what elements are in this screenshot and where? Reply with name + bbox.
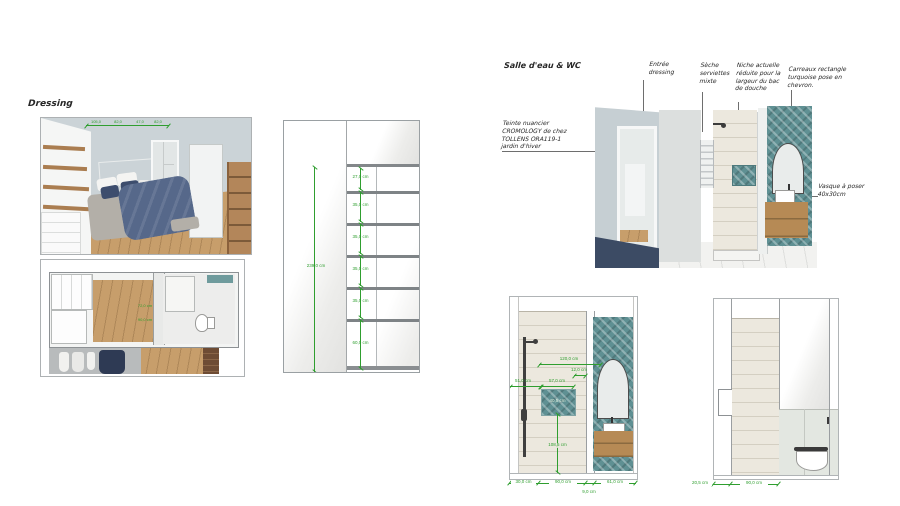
- bathroom-3d-view: [595, 104, 817, 268]
- floor-line: [510, 473, 637, 474]
- bathroom-title: Salle d'eau & WC: [504, 61, 582, 71]
- dimension-label: 12,0 cm: [566, 368, 592, 373]
- wc-elevation: [713, 298, 839, 480]
- hanging-shirt: [87, 352, 95, 370]
- dimension-label: 40,5 cm: [541, 399, 574, 404]
- hanging-shirt: [72, 352, 84, 372]
- plan-cabinet-block: [51, 310, 87, 344]
- dimension-label: 82,0: [107, 120, 129, 124]
- plan-shower: [165, 276, 195, 312]
- dimension-label: 82,0: [147, 120, 169, 124]
- left-margin-line: [518, 297, 519, 473]
- bedroom-3d-view: 105,0 82,0 47,0 82,0: [40, 117, 252, 255]
- open-closet-shelf: [164, 164, 174, 165]
- dressing-title: Dressing: [28, 99, 73, 111]
- design-sheet: Dressing 105,0 82,0 47,0 82,0: [0, 0, 900, 506]
- shower-column-head: [533, 339, 538, 344]
- toilet-bowl: [796, 451, 828, 471]
- hanging-shirt: [59, 352, 69, 372]
- dimension-line: [86, 125, 169, 126]
- dimension-label: 51,0 cm: [510, 379, 536, 384]
- dimension-label: 35,0 cm: [347, 299, 374, 304]
- dimension-line: [541, 386, 574, 387]
- wc-glass-panel: [779, 299, 830, 409]
- annotation-tiles: Carreaux rectangle turquoise pose en che…: [787, 66, 853, 89]
- ladder-shelf: [227, 162, 252, 254]
- shower-tray: [713, 250, 760, 261]
- dimension-line: [539, 364, 601, 365]
- dimension-label: 57,0 cm: [544, 379, 570, 384]
- dimension-label: 72,0 cm: [131, 304, 159, 308]
- wardrobe-top-cabinet: [347, 121, 419, 167]
- plan-wood-floor: [93, 280, 153, 342]
- dimension-label: 239,0 cm: [296, 264, 336, 269]
- wc-tile-column: [732, 318, 779, 476]
- shelf-slab: [347, 191, 419, 194]
- dimension-label: 60,0 cm: [347, 341, 374, 346]
- wardrobe-door-panel: [284, 121, 347, 372]
- shelf-slab: [347, 319, 419, 322]
- annotation-niche: Niche actuelle réduite pour la largeur d…: [735, 62, 792, 93]
- floor-line: [714, 475, 838, 476]
- section-stairs: [203, 348, 219, 374]
- dimension-line-total-height: [314, 167, 315, 372]
- dimension-label: 35,0 cm: [347, 235, 374, 240]
- plan-vanity-turquoise: [207, 275, 233, 283]
- shelf-slab: [347, 287, 419, 290]
- dimension-label: 27,0 cm: [347, 175, 374, 180]
- wardrobe-right-faces: [376, 167, 420, 367]
- dimension-label: 35,0 cm: [347, 203, 374, 208]
- dimension-label: 90,0 cm: [549, 480, 577, 485]
- arched-mirror: [597, 359, 629, 419]
- dimension-row: 30,0 cm 90,0 cm 61,0 cm 9,0 cm: [509, 479, 636, 499]
- dimension-label: 20,5 cm: [688, 481, 712, 486]
- doorway-floor: [620, 230, 648, 242]
- dimension-tick: [633, 480, 638, 485]
- dimension-label: 9,0 cm: [575, 490, 603, 495]
- dimension-label: 108,5 cm: [543, 443, 572, 448]
- dimension-label: 105,0: [85, 120, 107, 124]
- hanging-coat-navy: [99, 350, 125, 374]
- shower-niche-turquoise: [732, 165, 756, 186]
- plan-closet-block: [51, 274, 93, 310]
- leader-line: [502, 151, 608, 152]
- bathroom-left-wall-panel: [659, 110, 701, 262]
- dimension-row: 20,5 cm 90,0 cm: [688, 479, 838, 493]
- doorway-light-panel: [625, 164, 645, 216]
- dimension-label: 120,0 cm: [554, 357, 584, 362]
- plan-toilet-tank: [207, 317, 215, 329]
- bedroom-dresser: [41, 212, 81, 255]
- dimension-label: 61,0 cm: [601, 480, 629, 485]
- dimension-line: [510, 386, 541, 387]
- right-wall-line: [829, 299, 830, 475]
- shower-column: [523, 337, 526, 457]
- dimension-tick: [776, 481, 781, 486]
- wardrobe-elevation: 239,0 cm 27,0 cm 35,0 cm 35,0 cm 35,0 cm…: [283, 120, 420, 373]
- annotation-sink: Vasque à poser 40x30cm: [817, 183, 870, 199]
- towel-radiator: [700, 140, 714, 188]
- dimension-label: 30,0 cm: [511, 480, 536, 485]
- floor-plan-view: 72,0 cm 90,0 cm: [40, 259, 245, 377]
- door-handle: [827, 417, 829, 424]
- shower-elevation: 120,0 cm 12,0 cm 51,0 cm 57,0 cm 40,5 cm…: [509, 296, 638, 480]
- right-margin-line: [633, 297, 634, 473]
- shower-hand-unit: [521, 409, 527, 421]
- shower-head-disc: [721, 123, 726, 128]
- vanity-unit-wood: [765, 202, 808, 238]
- dimension-label: 90,0 cm: [740, 481, 768, 486]
- section-wood-floor: [141, 348, 203, 374]
- dimension-line: [574, 375, 586, 376]
- shelf-slab: [347, 255, 419, 258]
- annotation-paint: Teinte nuancier CROMOLOGY de chez TOLLEN…: [501, 120, 603, 151]
- vanity-unit-wood: [594, 431, 633, 457]
- shelf-slab: [347, 223, 419, 226]
- annotation-towel: Sèche serviettes mixte: [699, 62, 741, 85]
- annotation-entry: Entrée dressing: [648, 61, 689, 77]
- dimension-label: 90,0 cm: [131, 318, 159, 322]
- dimension-label: 35,0 cm: [347, 267, 374, 272]
